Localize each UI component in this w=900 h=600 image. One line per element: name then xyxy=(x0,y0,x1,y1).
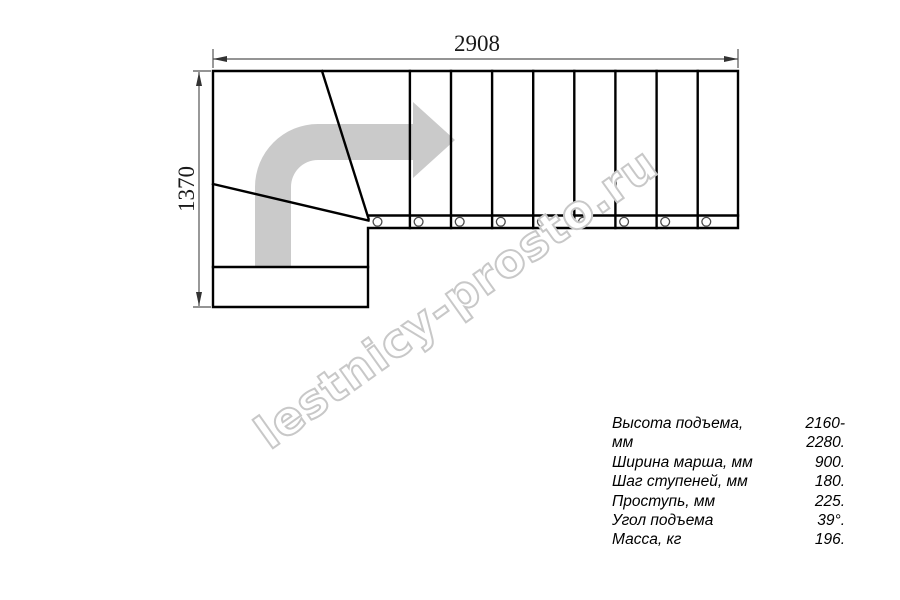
tread-lines xyxy=(410,71,698,228)
width-dimension: 2908 xyxy=(213,31,738,68)
turn-right-arrow-icon xyxy=(255,102,455,266)
spec-label: Высота подъема, мм xyxy=(612,414,767,453)
spec-value: 39°. xyxy=(817,511,845,530)
spec-row-mass: Масса, кг 196. xyxy=(612,530,845,549)
dim-arrow-right-icon xyxy=(724,56,738,62)
width-dimension-label: 2908 xyxy=(454,31,500,56)
staircase-outline xyxy=(213,71,738,307)
dim-arrow-left-icon xyxy=(213,56,227,62)
height-dimension: 1370 xyxy=(174,71,211,307)
spec-row-flight-width: Ширина марша, мм 900. xyxy=(612,453,845,472)
spec-label: Ширина марша, мм xyxy=(612,453,753,472)
specs-table: Высота подъема, мм 2160-2280. Ширина мар… xyxy=(612,414,845,550)
spec-label: Масса, кг xyxy=(612,530,681,549)
spec-row-step-pitch: Шаг ступеней, мм 180. xyxy=(612,472,845,491)
spec-value: 180. xyxy=(815,472,845,491)
spec-row-tread: Проступь, мм 225. xyxy=(612,492,845,511)
spec-label: Угол подъема xyxy=(612,511,713,530)
dim-arrow-up-icon xyxy=(196,72,202,86)
spec-value: 900. xyxy=(815,453,845,472)
spec-value: 2160-2280. xyxy=(767,414,845,453)
spec-row-rise-angle: Угол подъема 39°. xyxy=(612,511,845,530)
spec-value: 225. xyxy=(815,492,845,511)
spec-label: Шаг ступеней, мм xyxy=(612,472,748,491)
stringer-bolt-circles xyxy=(373,217,711,226)
spec-row-rise-height: Высота подъема, мм 2160-2280. xyxy=(612,414,845,453)
spec-label: Проступь, мм xyxy=(612,492,715,511)
spec-value: 196. xyxy=(815,530,845,549)
height-dimension-label: 1370 xyxy=(174,166,199,212)
dim-arrow-down-icon xyxy=(196,292,202,306)
staircase-drawing-canvas: 2908 1370 lestnicy-prosto.ru Высота подъ… xyxy=(0,0,900,600)
